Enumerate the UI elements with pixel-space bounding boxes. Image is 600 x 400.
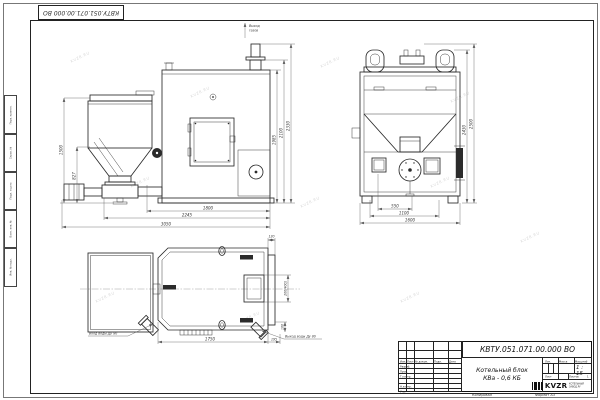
company-logo-text: KVZR	[545, 382, 568, 390]
row-label: Н.контр.	[400, 385, 412, 388]
boiler-body-side	[352, 50, 465, 203]
furnace-door	[188, 118, 235, 166]
dim-front-hopper-height: 1500	[59, 144, 64, 155]
scale-header: Масштаб	[575, 360, 587, 363]
dim-plan-panel: 120	[268, 235, 274, 239]
company-sub2: ЗАВОД.РУ	[569, 387, 584, 388]
row-label: Утв.	[400, 390, 405, 393]
col-header-list: Лист	[407, 360, 414, 363]
dim-side-total-width: 1600	[405, 218, 416, 223]
dim-plan-door: 200(400)	[284, 281, 288, 296]
dim-front-mid-length: 2245	[182, 213, 193, 218]
company-logo-cell: KVZR КОТЕЛЬНЫЙ ЗАВОД.РУ	[542, 379, 592, 392]
dim-plan-length: 1750	[205, 337, 216, 342]
dim-plan-offset: 195	[271, 338, 277, 342]
screw-feeder	[64, 184, 162, 204]
col-header-izm: Изм.	[400, 360, 406, 363]
dim-side-outer-height: 2500	[469, 118, 474, 129]
sheets-label: Листов	[569, 375, 579, 378]
sheets-value: 1	[587, 375, 589, 378]
gas-outlet-label: газов	[249, 29, 258, 33]
hopper-plan	[88, 253, 153, 332]
title-block-doc-number: КВТУ.051.071.00.000 ВО	[462, 341, 592, 358]
col-header-date: Дата	[449, 360, 456, 363]
lifting-lug	[436, 50, 454, 72]
dim-front-body-height: 1985	[272, 134, 277, 145]
mass-header: Масса	[559, 360, 567, 363]
copied-label: Копировал	[472, 393, 492, 397]
return-pipe	[456, 148, 463, 178]
item-name-line1: Котельный блок	[476, 367, 528, 375]
inlet-label: Вход воды Ду 80	[89, 332, 117, 336]
sheet-label: Лист	[545, 375, 552, 378]
row-label: Т.контр.	[400, 375, 411, 378]
col-header-doc: № докум.	[415, 360, 428, 363]
lit-header: Лит.	[545, 360, 551, 363]
dim-front-total-height: 2330	[286, 120, 291, 131]
title-block-signatures: Изм. Лист № докум. Подп. Дата Разраб. Пр…	[398, 341, 462, 392]
dim-plan-outlet-offset: 100	[281, 324, 285, 330]
fan-unit	[238, 150, 270, 196]
fuel-hopper	[88, 91, 154, 185]
format-label: Формат А3	[535, 393, 555, 397]
boiler-body-plan	[138, 247, 275, 340]
gas-outlet-label: Выход	[249, 24, 261, 28]
row-label: Пров.	[400, 370, 408, 373]
boiler-body-front	[152, 70, 274, 203]
lifting-lug	[366, 50, 384, 72]
dim-side-center-width: 550	[391, 204, 399, 209]
dim-side-inner-height: 2430	[462, 124, 467, 135]
chimney	[246, 44, 265, 70]
dim-front-total-length: 3050	[161, 222, 172, 227]
dim-front-mid-height: 2100	[279, 127, 284, 138]
dim-side-mid-width: 1100	[399, 211, 410, 216]
drawing-sheet: KVZR.RU KVZR.RU KVZR.RU KVZR.RU KVZR.RU …	[0, 0, 600, 400]
dim-front-body-length: 1800	[203, 206, 214, 211]
item-name-line2: КВа - 0,6 КБ	[483, 375, 521, 383]
doc-number-text: КВТУ.051.071.00.000 ВО	[480, 345, 575, 354]
title-block-name: Котельный блок КВа - 0,6 КБ	[462, 358, 542, 392]
logo-barcode-icon	[532, 382, 543, 390]
plan-view: Вход воды Ду 80 Выход воды Ду 80 1750 19…	[80, 235, 322, 345]
dim-front-feeder-height: 827	[72, 172, 77, 180]
row-label: Разраб.	[400, 365, 410, 368]
front-view: Выход газов	[59, 23, 296, 229]
drawing-views: Выход газов	[0, 0, 600, 400]
outlet-label: Выход воды Ду 80	[285, 335, 316, 339]
vent-stub	[166, 63, 172, 70]
side-view: 550 1100 1600 2430 2500	[352, 44, 477, 225]
col-header-sign: Подп.	[434, 360, 442, 363]
